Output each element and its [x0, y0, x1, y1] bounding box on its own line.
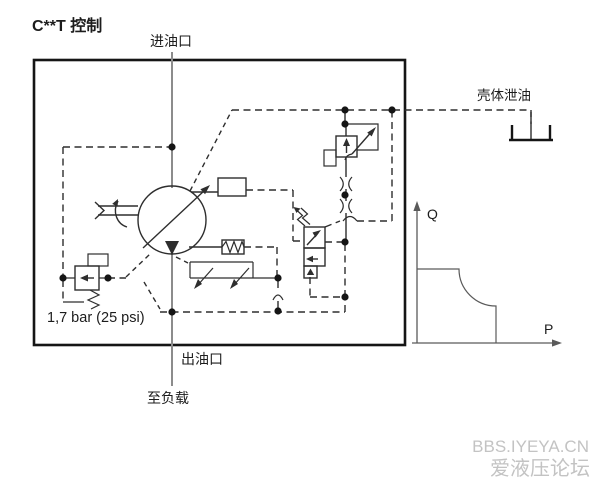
pilot-relief-drain-box	[324, 150, 336, 166]
reservoir-symbol	[509, 112, 553, 140]
orifice-fixed-2	[340, 199, 352, 213]
case-drain-label: 壳体泄油	[477, 88, 531, 103]
variable-displacement-arrow	[143, 190, 205, 248]
power-limit-curve	[417, 269, 496, 343]
schematic-canvas: Q P C**T 控制 进油口 壳体泄油 出油口 至负载 1,7 bar (25…	[0, 0, 600, 489]
variable-pump-symbol	[95, 185, 210, 255]
line-break-mark	[273, 295, 283, 300]
low-pressure-relief-valve	[63, 147, 170, 309]
orifice-fixed-1	[340, 177, 352, 191]
watermark-site: BBS.IYEYA.CN	[472, 437, 589, 456]
p-axis-label: P	[544, 321, 553, 337]
q-axis-label: Q	[427, 206, 438, 222]
pump-outlet-triangle	[165, 241, 179, 255]
valve-position-bottom	[304, 248, 325, 266]
pq-characteristic-graph: Q P	[412, 201, 562, 347]
q-axis-arrow	[413, 201, 420, 211]
shaft-chevron	[95, 202, 104, 219]
actuator-box	[218, 178, 246, 196]
p-axis-arrow	[552, 339, 562, 346]
relief-spring	[88, 290, 99, 309]
orifice-loop	[176, 257, 275, 289]
control-piston	[191, 178, 246, 196]
case-drain-line	[144, 110, 531, 309]
watermark: BBS.IYEYA.CN 爱液压论坛	[472, 437, 590, 480]
to-load-label: 至负载	[147, 390, 189, 406]
pressure-setting-label: 1,7 bar (25 psi)	[47, 310, 145, 326]
inlet-port-label: 进油口	[150, 33, 192, 49]
hydraulic-schematic-page: Q P C**T 控制 进油口 壳体泄油 出油口 至负载 1,7 bar (25…	[0, 0, 600, 489]
watermark-forum: 爱液压论坛	[490, 457, 590, 480]
relief-pilot-box	[88, 254, 108, 266]
spring-zigzag	[222, 242, 244, 253]
line-jump-mark	[343, 217, 357, 222]
page-title: C**T 控制	[32, 16, 102, 35]
outlet-port-label: 出油口	[181, 351, 223, 367]
proportional-control-valve	[294, 207, 326, 278]
